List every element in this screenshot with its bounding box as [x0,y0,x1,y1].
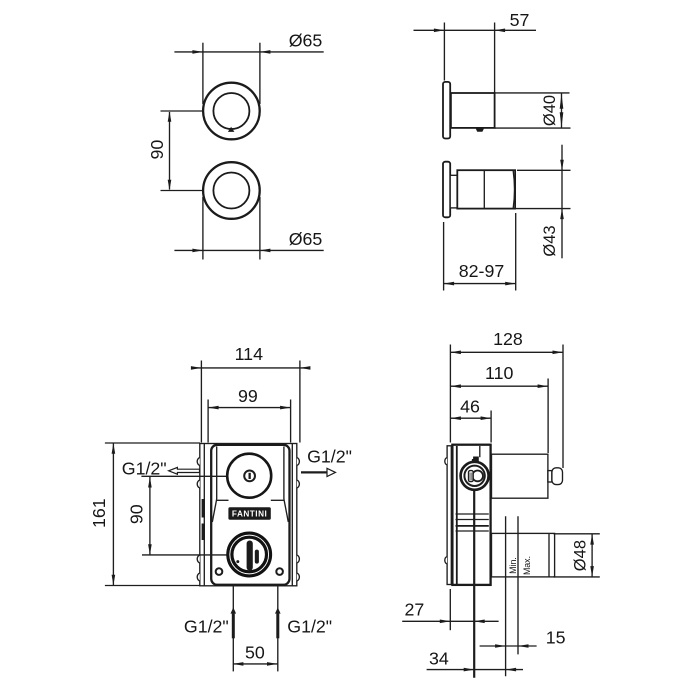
svg-text:Ø65: Ø65 [289,229,323,249]
svg-text:82-97: 82-97 [459,261,504,281]
svg-text:27: 27 [405,599,425,619]
svg-text:110: 110 [485,363,513,383]
svg-text:50: 50 [245,643,265,663]
svg-text:128: 128 [493,329,523,349]
svg-text:Min.: Min. [508,557,518,574]
svg-text:Ø48: Ø48 [572,540,590,571]
svg-text:114: 114 [235,344,263,364]
svg-text:Ø65: Ø65 [289,30,323,50]
svg-text:46: 46 [460,397,480,417]
svg-text:161: 161 [89,498,109,528]
svg-text:Ø43: Ø43 [541,225,559,256]
svg-text:90: 90 [126,504,146,524]
svg-text:FANTINI: FANTINI [232,510,267,519]
svg-text:99: 99 [238,386,258,406]
svg-text:90: 90 [147,140,167,160]
svg-text:Max.: Max. [522,556,532,575]
svg-text:G1/2": G1/2" [184,616,229,636]
svg-text:15: 15 [546,628,566,648]
svg-text:34: 34 [429,648,449,668]
svg-text:G1/2": G1/2" [307,447,352,467]
svg-text:G1/2": G1/2" [287,616,332,636]
svg-text:Ø40: Ø40 [541,95,559,126]
svg-text:57: 57 [510,10,530,30]
svg-text:G1/2": G1/2" [122,458,167,478]
